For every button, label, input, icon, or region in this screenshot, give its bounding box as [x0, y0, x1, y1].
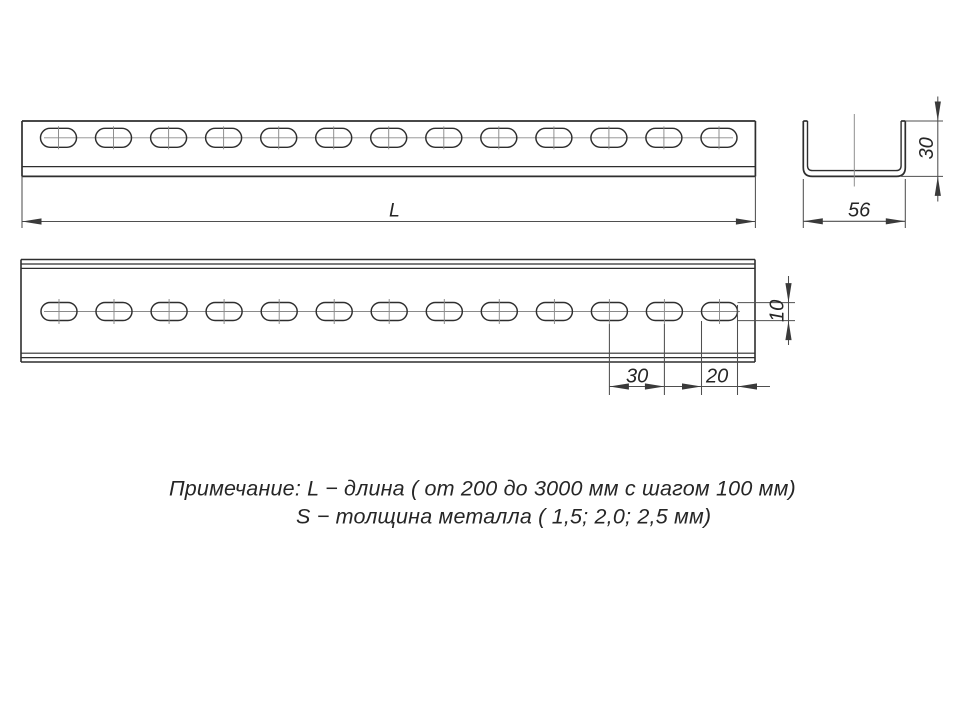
svg-text:30: 30 [916, 137, 938, 159]
svg-text:30: 30 [626, 366, 648, 388]
svg-text:20: 20 [705, 366, 728, 388]
svg-text:L: L [389, 199, 400, 221]
svg-text:S − толщина металла ( 1,5; 2,0: S − толщина металла ( 1,5; 2,0; 2,5 мм) [296, 505, 711, 529]
svg-text:Примечание: L − длина ( от 200: Примечание: L − длина ( от 200 до 3000 м… [169, 477, 796, 501]
svg-text:10: 10 [767, 300, 789, 322]
svg-text:56: 56 [848, 200, 871, 222]
